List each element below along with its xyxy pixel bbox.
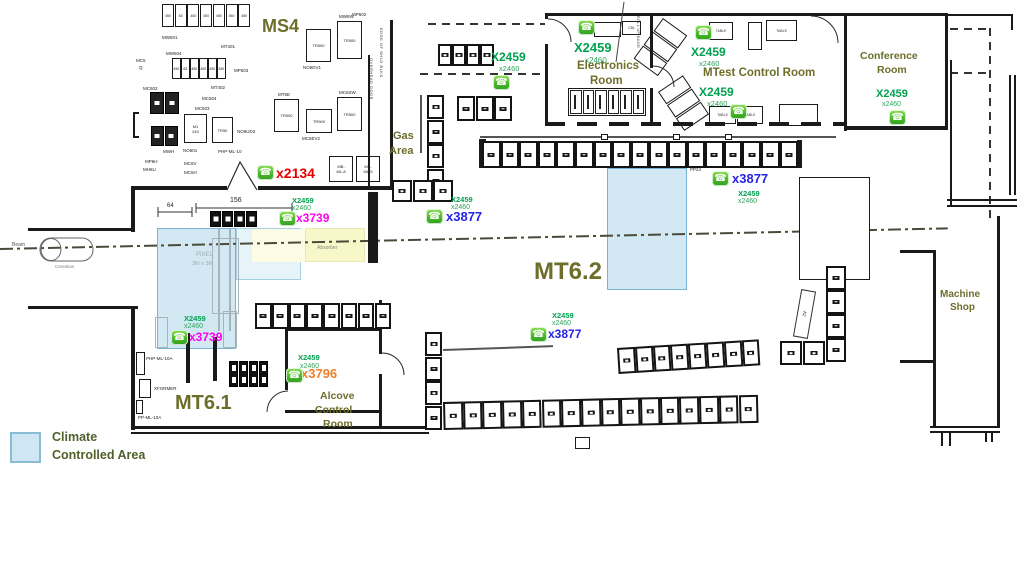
extension-x3739: x3739	[189, 330, 222, 344]
extension-x2459: X2459	[292, 196, 314, 205]
eq-label-php-ml-10: PHP-ML-10	[218, 149, 242, 154]
eq-label-mc6ev2: MC6EV2	[302, 136, 320, 141]
area-label-mtest-control-room: MTest Control Room	[703, 67, 815, 79]
eq-label-mc5-q: Q	[139, 65, 143, 70]
phone-icon: ☎	[530, 327, 547, 342]
dimension-line-156	[196, 203, 292, 213]
edge-of-shld-blks-label: EDGE OF SHLD BLKS	[379, 28, 384, 78]
eq-label-no6ud2: NO6UD2	[237, 129, 255, 134]
extension-x3796: x3796	[301, 366, 337, 381]
extension-x2460: x2460	[585, 56, 607, 65]
pixel-label-2: 3M x 3M	[192, 261, 213, 267]
area-label-alcove-3: Room	[323, 418, 353, 430]
eq-label-mt402: MT402	[211, 85, 225, 90]
extension-x3877: x3877	[446, 209, 482, 224]
phone-icon: ☎	[695, 25, 712, 40]
extension-x2459: X2459	[691, 45, 726, 59]
extension-x2459: X2459	[491, 50, 526, 64]
extension-x2460: x2460	[738, 198, 757, 205]
extension-x2459: X2459	[552, 311, 574, 320]
floor-plan: MS4 MT6.1 MT6.2 Gas Area Electronics Roo…	[0, 0, 1024, 562]
dimension-64: 64	[167, 203, 174, 209]
area-label-gas-2: Area	[389, 145, 413, 157]
eq-label-mc6v: MC6V	[184, 161, 197, 166]
beam-label: Beam	[12, 242, 25, 248]
extension-x3877: x3877	[548, 327, 581, 341]
eq-label-mc502: MC502	[143, 86, 158, 91]
legend-label-1: Climate	[52, 430, 97, 444]
extension-x2460: x2460	[707, 99, 727, 108]
area-label-electronics-2: Room	[590, 75, 623, 87]
extension-x2459: X2459	[738, 189, 760, 198]
extension-x2459: X2459	[876, 88, 908, 100]
dimension-line-64	[158, 207, 192, 217]
eq-label-mc6h: MC6H	[184, 170, 197, 175]
area-label-conference-2: Room	[877, 64, 907, 76]
eq-label-mp503: MP503	[234, 68, 248, 73]
cerenkov-counter-end	[41, 239, 61, 261]
eq-label-mc503: MC503	[195, 106, 210, 111]
mtest-ne-door-arc	[811, 16, 838, 43]
eq-label-mwh: MWH	[163, 149, 174, 154]
extension-x2460: x2460	[882, 101, 901, 108]
area-label-machine-shop-2: Shop	[950, 302, 975, 313]
cerenkov-counter-outline	[40, 238, 93, 261]
area-label-alcove-1: Alcove	[320, 390, 354, 402]
extension-x2459: X2459	[699, 85, 734, 99]
eq-label-mw504: MW504	[166, 51, 182, 56]
eq-label-mc5: MC5	[136, 58, 146, 63]
area-label-conference-1: Conference	[860, 50, 918, 62]
eq-label-no601: NO601	[183, 148, 197, 153]
phone-icon: ☎	[279, 211, 296, 226]
cerenkov-label: Cerenkov	[55, 264, 74, 269]
dimension-156: 156	[230, 197, 242, 204]
eq-label-mh6u: MH6U	[143, 167, 156, 172]
extension-x2460: x2460	[499, 64, 519, 73]
extension-x3739: x3739	[296, 211, 329, 225]
extension-x2460: x2460	[184, 323, 203, 330]
extension-x2459: X2459	[451, 195, 473, 204]
overhead-door-label: OVERHEAD DOOR	[369, 58, 374, 100]
area-label-alcove-2: Control	[315, 404, 352, 416]
doors-and-details-layer	[0, 0, 1024, 562]
eq-label-no6dv1: NO6DV1	[303, 65, 321, 70]
extension-x3877: x3877	[732, 171, 768, 186]
absorber-label: Absorber	[317, 245, 337, 251]
eq-label-php-ml-10a: PHP-ML-10A	[146, 356, 173, 361]
extension-x2460: x2460	[552, 320, 571, 327]
eq-label-pp24: PP24	[690, 167, 701, 172]
phone-icon: ☎	[286, 368, 303, 383]
eq-label-xformer: XFORMER	[154, 386, 177, 391]
eq-label-pp-ml-10a: PP-ML-10A	[138, 415, 161, 420]
phone-icon: ☎	[730, 104, 747, 119]
area-label-ms4: MS4	[262, 16, 299, 37]
extension-x2459: X2459	[298, 353, 320, 362]
phone-icon: ☎	[171, 330, 188, 345]
extension-x2460: x2460	[699, 59, 719, 68]
area-label-machine-shop-1: Machine	[940, 289, 980, 300]
alcove-left-door-arc	[267, 391, 288, 412]
eq-label-mc504: MC504	[202, 96, 217, 101]
legend-swatch-climate	[10, 432, 41, 463]
phone-icon: ☎	[712, 171, 729, 186]
crane-rail-line	[616, 2, 624, 62]
eq-label-mt401: MT401	[221, 44, 235, 49]
legend-label-2: Controlled Area	[52, 448, 145, 462]
eq-label-mw501: MW501	[162, 35, 178, 40]
phone-icon: ☎	[257, 165, 274, 180]
eq-label-mt5e: MT5E	[278, 92, 290, 97]
electronics-door-arc	[548, 19, 571, 42]
extension-x2134: x2134	[276, 165, 315, 181]
eq-label-mc6sw: MC6SW	[339, 90, 356, 95]
phone-icon: ☎	[578, 20, 595, 35]
eq-label-mp6h: MP6H	[145, 159, 158, 164]
eq-label-mp502: MP502	[352, 12, 366, 17]
area-label-mt62: MT6.2	[534, 258, 602, 286]
mtest-west-door-arc	[653, 66, 674, 87]
phone-icon: ☎	[889, 110, 906, 125]
area-label-gas-1: Gas	[393, 130, 414, 142]
extension-x2459: X2459	[574, 40, 612, 55]
extension-x2459: X2459	[184, 314, 206, 323]
phone-icon: ☎	[493, 75, 510, 90]
roll-up-door-label: ROLL UP DOOR	[636, 16, 640, 48]
area-label-mt61: MT6.1	[175, 392, 232, 415]
alcove-right-door-arc	[382, 353, 404, 375]
eq-label-mw6w: MW6W	[339, 14, 354, 19]
ms4-door-swing	[227, 162, 257, 190]
phone-icon: ☎	[426, 209, 443, 224]
pixel-label-1: PIXEL	[196, 252, 213, 258]
